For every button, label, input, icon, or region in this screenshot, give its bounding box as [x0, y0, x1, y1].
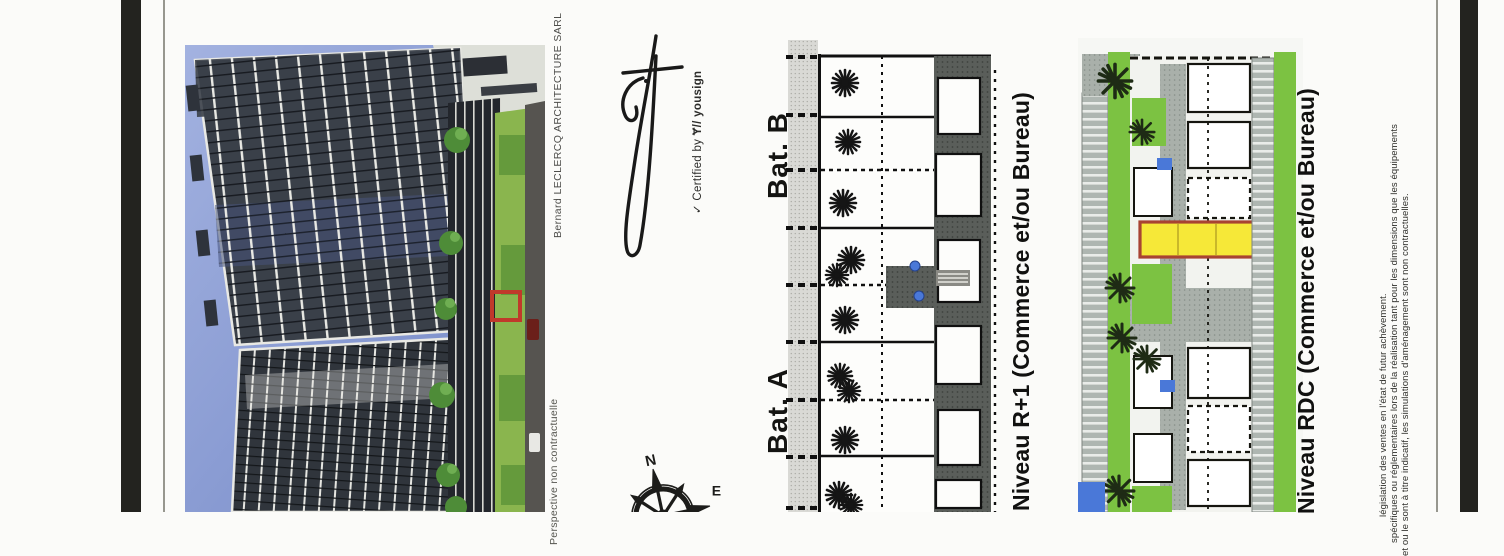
- perspective-caption: Perspective non contractuelle: [549, 399, 560, 545]
- architect-credit: Bernard LECLERCQ ARCHITECTURE SARL: [553, 13, 564, 238]
- disclaimer-line-2: spécifiques ou réglementaires lors de la…: [1390, 124, 1400, 543]
- stair-hatch: [936, 270, 970, 286]
- caption-r1: Niveau R+1 (Commerce et/ou Bureau): [1009, 92, 1033, 511]
- scan-border-right: [1460, 0, 1478, 512]
- check-icon: ✓: [692, 204, 704, 214]
- floor-plan-rdc: [1078, 38, 1303, 512]
- certified-label: Certified by: [692, 139, 704, 201]
- scan-line-right: [1436, 0, 1438, 512]
- compass-north-label: N: [644, 451, 658, 470]
- sidewalk-strip-right: [1252, 58, 1274, 512]
- tower-b-facade: [232, 338, 470, 512]
- highlighted-unit: [1140, 222, 1258, 257]
- road-strip-r1: [788, 40, 818, 512]
- yousign-logo-icon: Ɏ//: [692, 120, 704, 135]
- disclaimer-line-1: législation des ventes en l'état de futu…: [1379, 293, 1389, 517]
- yousign-brand: yousign: [692, 71, 704, 117]
- parking-strip-left: [1082, 93, 1108, 512]
- white-car: [529, 433, 540, 452]
- compass-east-label: E: [712, 482, 721, 498]
- red-car: [527, 319, 539, 340]
- certified-by-line: ✓ Certified by Ɏ// yousign: [692, 71, 704, 214]
- building-perspective-rendering: [185, 45, 545, 512]
- tower-a-glass-band: [215, 193, 468, 267]
- scanned-plan-sheet: { "perspective": { "credit": "Bernard LE…: [0, 0, 1504, 512]
- compass-rose-icon: N E: [608, 446, 758, 512]
- floor-plan-r1: [786, 40, 1008, 512]
- disclaimer-line-3: et ou le sont à titre indicatif, les sim…: [1401, 193, 1411, 556]
- scan-border-left: [121, 0, 141, 512]
- caption-rdc: Niveau RDC (Commerce et/ou Bureau): [1294, 88, 1318, 514]
- scan-line-left: [163, 0, 165, 512]
- signature-mark: [598, 28, 698, 268]
